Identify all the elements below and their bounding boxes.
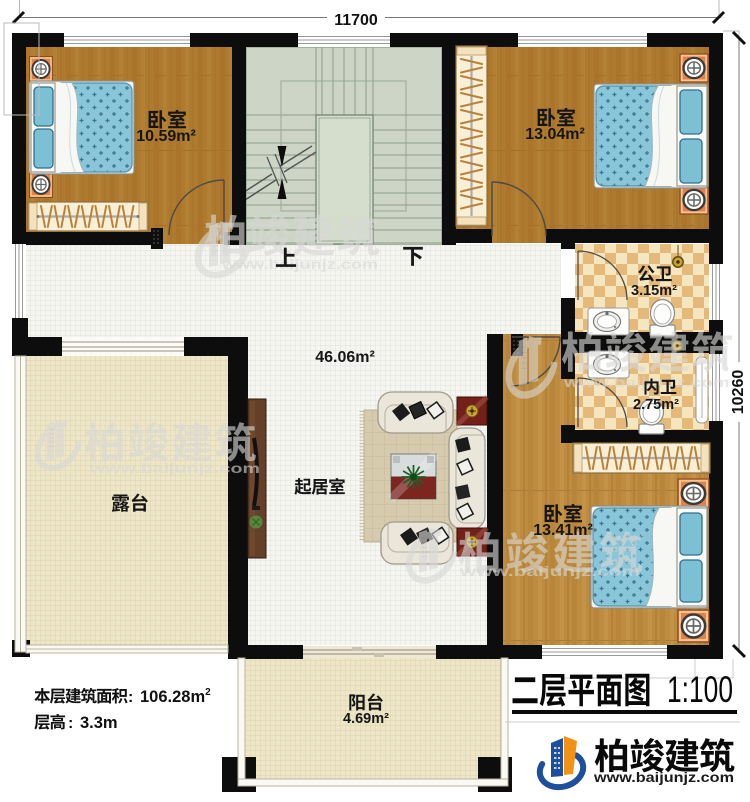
svg-text:11700: 11700 <box>334 12 378 29</box>
svg-text:10260: 10260 <box>730 370 747 415</box>
svg-text:www.baijunjz.com: www.baijunjz.com <box>221 256 378 272</box>
svg-text::: : <box>128 689 133 706</box>
svg-text:46.06m²: 46.06m² <box>315 349 375 366</box>
svg-text:1:100: 1:100 <box>667 669 733 710</box>
svg-text:10.59m²: 10.59m² <box>136 128 196 145</box>
svg-text:www.baijunjz.com: www.baijunjz.com <box>459 563 640 579</box>
svg-text:13.04m²: 13.04m² <box>525 126 585 143</box>
svg-text:3.3m: 3.3m <box>80 714 118 732</box>
svg-text:www.baijunjz.com: www.baijunjz.com <box>593 770 734 785</box>
svg-text:www.baijunjz.com: www.baijunjz.com <box>89 460 260 476</box>
svg-text:106.28m2: 106.28m2 <box>140 687 211 706</box>
svg-text:2.75m²: 2.75m² <box>633 397 679 413</box>
svg-text:13.41m²: 13.41m² <box>533 522 593 539</box>
svg-text::: : <box>68 715 73 732</box>
svg-text:3.15m²: 3.15m² <box>631 283 677 299</box>
svg-text:4.69m²: 4.69m² <box>343 711 389 727</box>
